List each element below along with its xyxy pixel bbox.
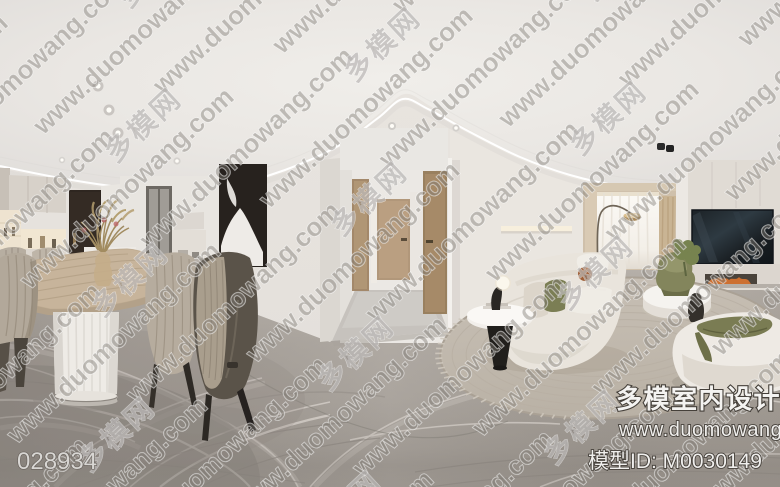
svg-text:多模室内设计: 多模室内设计: [616, 384, 780, 414]
svg-text:模型ID: M0030149: 模型ID: M0030149: [588, 450, 762, 473]
svg-text:www.duomowang.co: www.duomowang.co: [618, 419, 780, 441]
svg-text:028934: 028934: [17, 448, 97, 475]
